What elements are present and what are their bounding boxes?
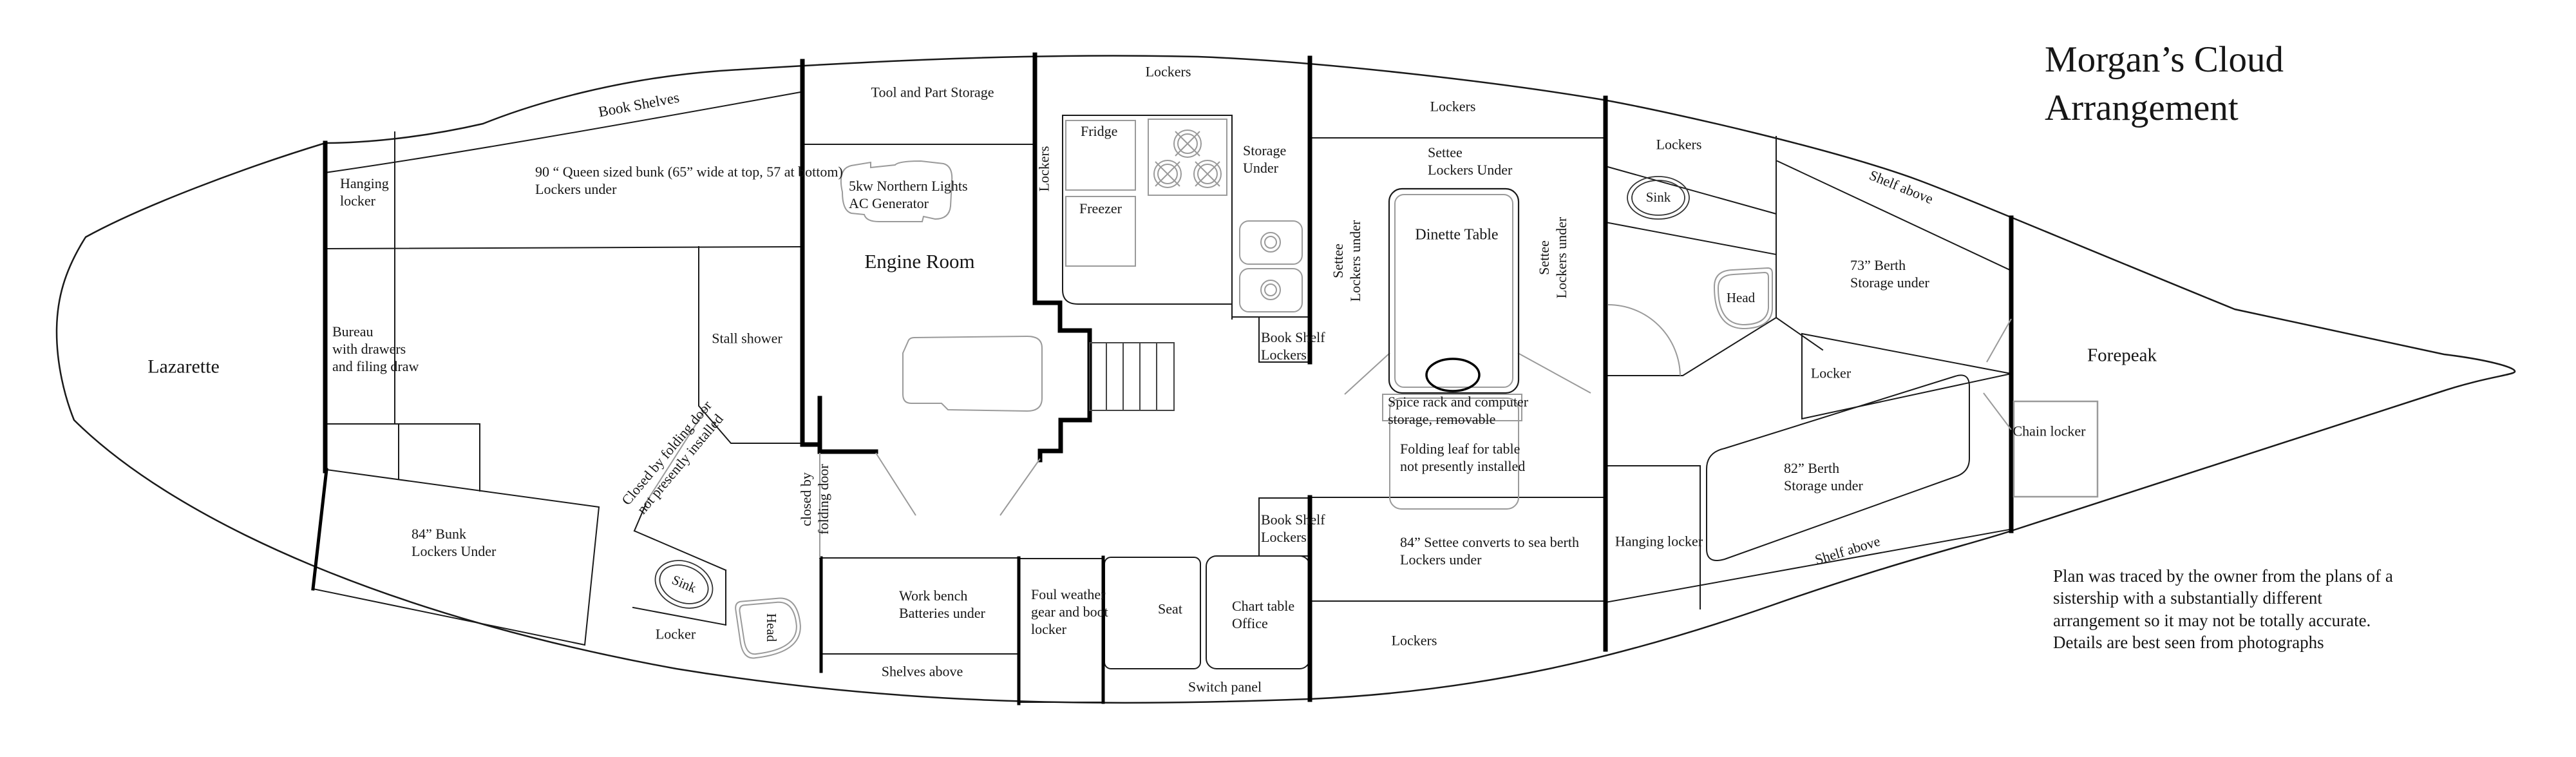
mast-ellipse xyxy=(1426,359,1479,391)
label-folding-leaf: Folding leaf for table not presently ins… xyxy=(1400,441,1525,475)
label-head-aft: Head xyxy=(762,613,779,642)
label-bunk-84: 84” Bunk Lockers Under xyxy=(412,526,496,561)
boat-arrangement-diagram: Lazarette Hanging locker Bureau with dra… xyxy=(0,0,2576,757)
label-tool-part-storage: Tool and Part Storage xyxy=(871,84,994,102)
label-stall-shower: Stall shower xyxy=(712,331,782,348)
companionway-stairs xyxy=(1090,343,1174,410)
dinette-table-outline xyxy=(1389,189,1519,393)
label-hanging-locker-aft: Hanging locker xyxy=(340,175,389,210)
seat-outline xyxy=(1104,557,1200,669)
stove-burner-icons xyxy=(1154,130,1221,187)
label-switch-panel: Switch panel xyxy=(1188,679,1262,696)
page-title: Morgan’s Cloud Arrangement xyxy=(2045,35,2284,132)
label-berth-82: 82” Berth Storage under xyxy=(1784,460,1863,495)
label-foul-weather: Foul weather gear and boot locker xyxy=(1031,586,1108,638)
label-locker-fwd-triangle: Locker xyxy=(1811,365,1851,383)
label-generator: 5kw Northern Lights AC Generator xyxy=(849,178,968,213)
label-settee-lockers-under-top: Settee Lockers Under xyxy=(1428,144,1512,179)
label-engine-room: Engine Room xyxy=(864,249,974,274)
label-seat: Seat xyxy=(1158,601,1182,618)
label-lazarette: Lazarette xyxy=(147,356,220,379)
label-chart-table: Chart table Office xyxy=(1232,598,1294,633)
label-freezer: Freezer xyxy=(1079,200,1122,218)
galley-sinks-shape xyxy=(1240,221,1302,312)
label-berth-73: 73” Berth Storage under xyxy=(1850,257,1929,292)
label-queen-bunk: 90 “ Queen sized bunk (65” wide at top, … xyxy=(535,164,843,198)
label-book-shelf-lockers-upper: Book Shelf Lockers xyxy=(1261,329,1325,364)
label-settee-84: 84” Settee converts to sea berth Lockers… xyxy=(1400,534,1579,569)
engine-shape xyxy=(903,336,1042,411)
label-spice-rack: Spice rack and computer storage, removab… xyxy=(1388,394,1528,428)
label-settee-right: Settee Lockers under xyxy=(1536,217,1571,298)
label-head-fwd: Head xyxy=(1727,290,1755,307)
label-work-bench: Work bench Batteries under xyxy=(899,588,985,622)
label-lockers-settee-top: Lockers xyxy=(1430,99,1476,116)
label-storage-under: Storage Under xyxy=(1243,142,1286,177)
label-closed-folding-door-vert: closed by folding door xyxy=(798,464,833,534)
label-lockers-fwd: Lockers xyxy=(1656,137,1702,154)
label-bureau: Bureau with drawers and filing draw xyxy=(332,323,419,375)
label-locker-aft: Locker xyxy=(656,626,696,644)
label-lockers-engine: Lockers xyxy=(1036,146,1054,192)
plan-note: Plan was traced by the owner from the pl… xyxy=(2053,565,2393,653)
label-lockers-galley: Lockers xyxy=(1146,64,1191,81)
label-shelves-above: Shelves above xyxy=(882,664,963,681)
label-hanging-locker-fwd: Hanging locker xyxy=(1615,533,1703,551)
label-chain-locker: Chain locker xyxy=(2012,423,2085,441)
label-lockers-port-bottom: Lockers xyxy=(1392,633,1437,650)
label-fridge: Fridge xyxy=(1081,123,1117,140)
chain-locker-box xyxy=(2014,401,2098,497)
label-dinette-table: Dinette Table xyxy=(1415,225,1498,244)
label-sink-fwd: Sink xyxy=(1646,189,1671,206)
label-settee-left: Settee Lockers under xyxy=(1330,220,1365,302)
label-book-shelf-lockers-lower: Book Shelf Lockers xyxy=(1261,512,1325,546)
label-forepeak: Forepeak xyxy=(2087,344,2157,367)
door-swing-lines xyxy=(646,305,2011,558)
